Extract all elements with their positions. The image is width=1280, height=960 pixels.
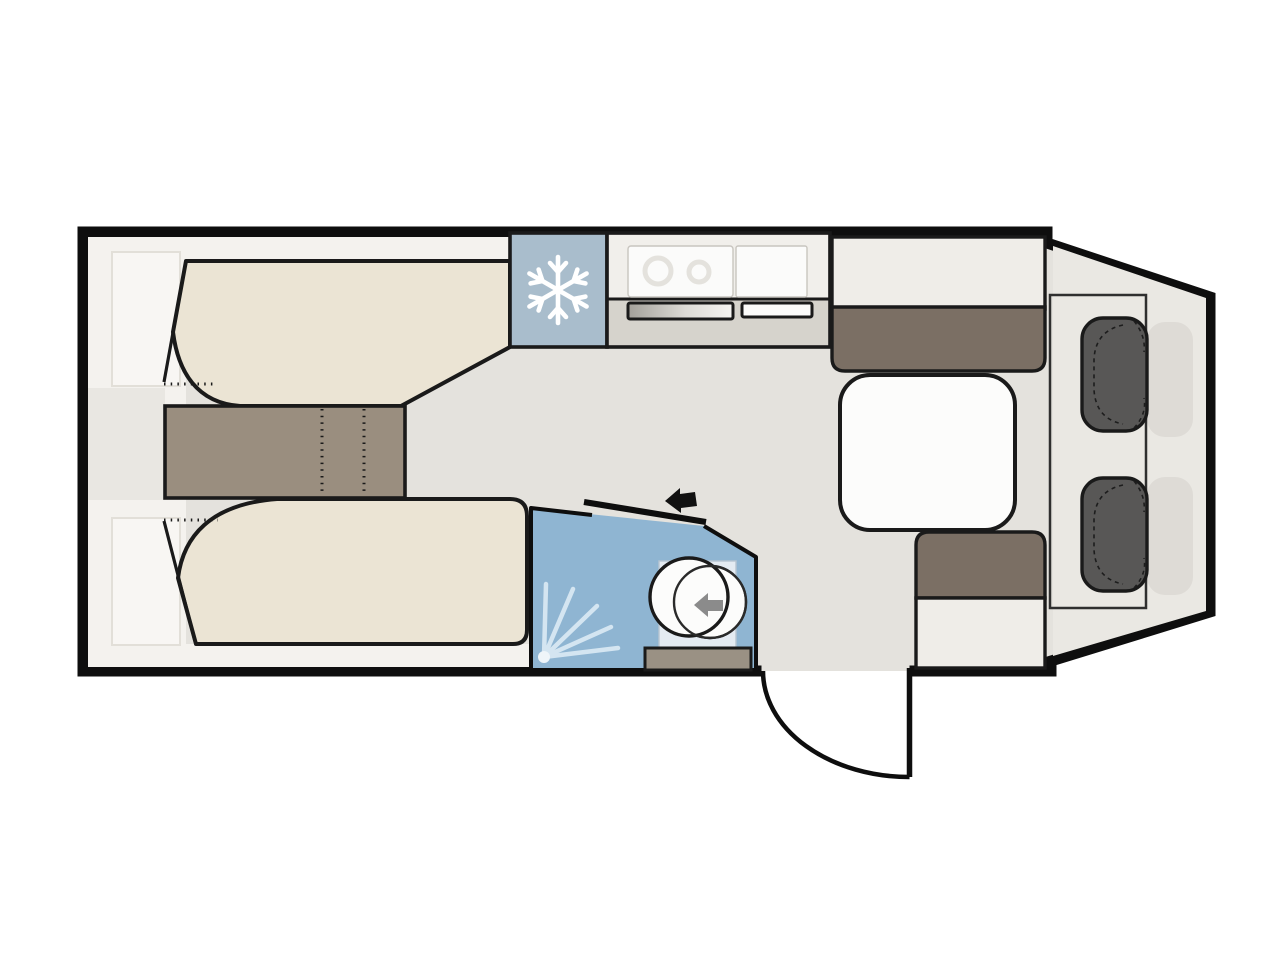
bed-bottom-mattress bbox=[178, 499, 527, 644]
rear-mid-band bbox=[88, 388, 165, 500]
door-opening-outer bbox=[762, 671, 910, 683]
chest-body bbox=[165, 406, 405, 498]
cab-seat-driver bbox=[1082, 318, 1147, 431]
door-swing-arc bbox=[763, 671, 910, 777]
cab-seat-passenger bbox=[1082, 478, 1147, 591]
toilet-base-cabinet bbox=[645, 648, 751, 670]
refrigerator bbox=[510, 233, 607, 347]
bedside-chest bbox=[165, 406, 405, 498]
kitchen-drawer-right bbox=[742, 303, 812, 317]
wardrobe-top bbox=[112, 252, 180, 386]
dinette-backrest-bottom bbox=[916, 532, 1045, 598]
cab-seat-shadow-top bbox=[1147, 322, 1193, 437]
sink bbox=[736, 246, 807, 297]
caravan-floorplan-image bbox=[0, 0, 1280, 960]
dinette-seat-top bbox=[832, 237, 1045, 309]
dinette-seat-bottom bbox=[916, 598, 1045, 668]
entry-door bbox=[762, 663, 910, 777]
toilet-bowl bbox=[650, 558, 728, 636]
dinette-backrest-top bbox=[832, 307, 1045, 371]
cab-floor bbox=[1053, 246, 1206, 656]
wardrobe-bottom bbox=[112, 518, 180, 645]
cab-seat-shadow-bottom bbox=[1147, 477, 1193, 595]
shelf-below-bed bbox=[88, 644, 531, 667]
bed-bottom bbox=[164, 499, 527, 645]
kitchen bbox=[607, 233, 830, 347]
floorplan-svg bbox=[0, 0, 1280, 960]
door-opening-floor bbox=[762, 663, 910, 671]
dinette-table bbox=[840, 375, 1015, 530]
kitchen-drawer-left bbox=[628, 303, 733, 319]
